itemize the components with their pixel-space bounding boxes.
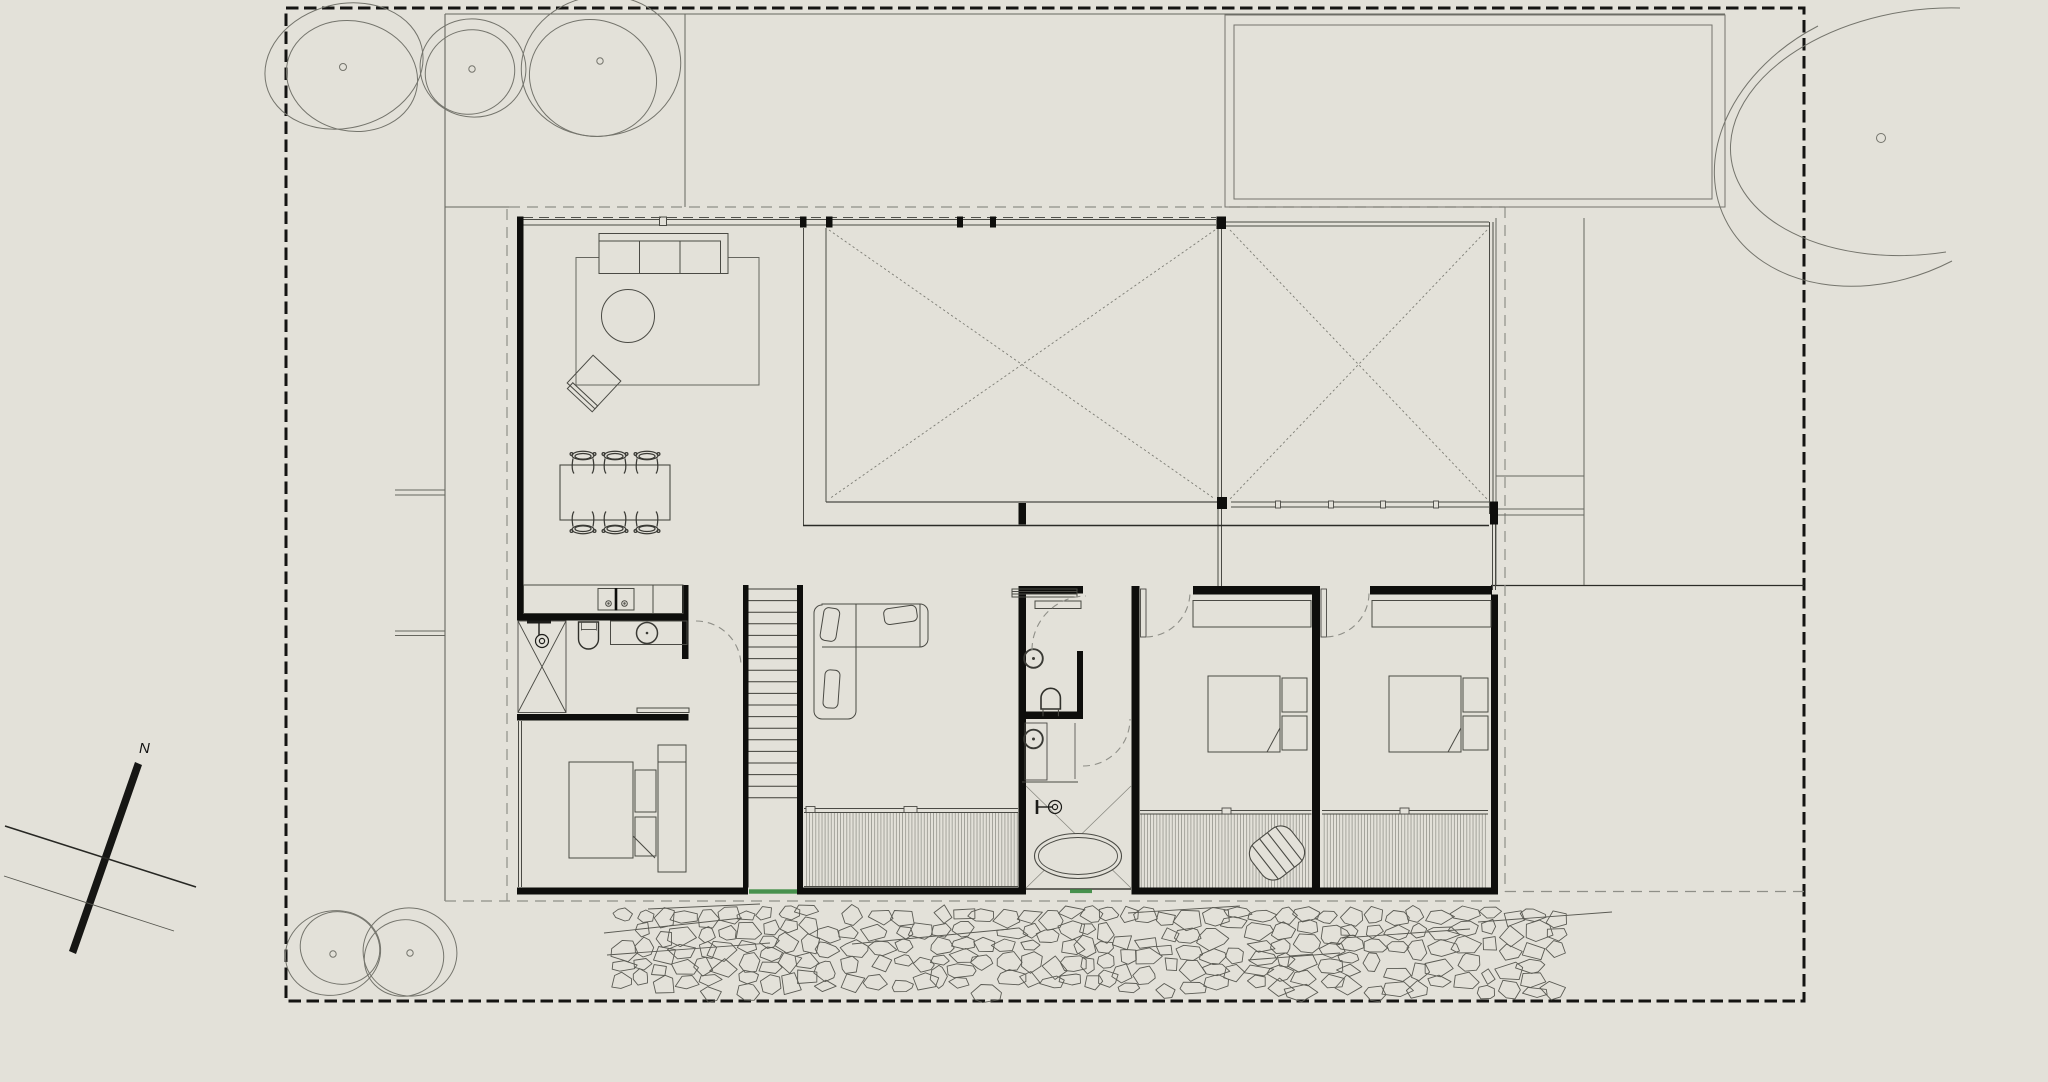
- svg-text:N: N: [139, 740, 150, 757]
